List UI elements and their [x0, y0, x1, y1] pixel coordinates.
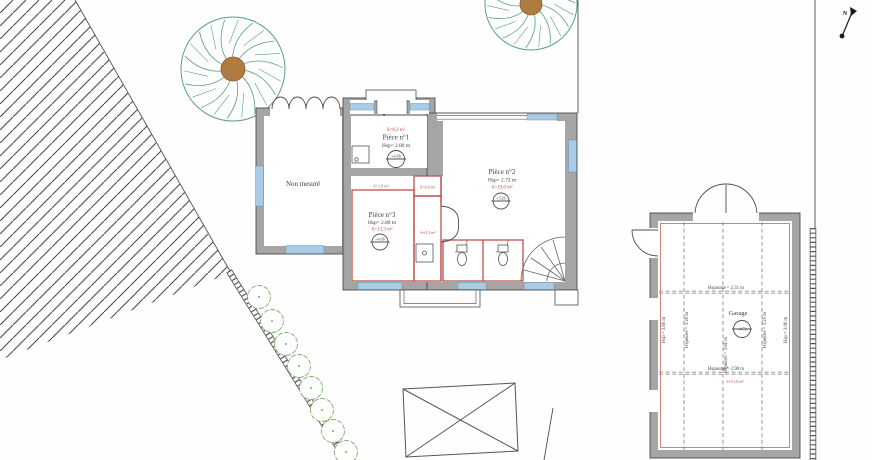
main-house: S=8,2 m² Pièce n°1 Hsp= 2.80 m +4.68 Piè… [343, 90, 577, 290]
window [410, 104, 429, 111]
corridor-interior [415, 176, 443, 282]
chimney-block [366, 90, 416, 101]
room2-height: Hsp= 2.72 m [488, 178, 517, 184]
room-non-mesure: Non mesuré [256, 97, 351, 254]
garage: Hspoutre = 2.31 m Hspoutre = 2.98 m S=51… [632, 184, 800, 458]
window [527, 114, 557, 120]
tree-icon [181, 17, 285, 121]
door-opening [377, 100, 407, 114]
room3-level: +4.68 [375, 237, 384, 242]
window [256, 166, 264, 206]
floor-plan-page: N Non mesuré [0, 0, 872, 460]
room1-name: Pièce n°1 [383, 134, 410, 142]
room3-height: Hsp= 2.80 m [368, 220, 397, 226]
garage-double-door-icon [695, 184, 757, 213]
room3-area: S=13,3 m² [372, 227, 393, 233]
garage-name: Garage [729, 310, 748, 317]
path-line [544, 408, 553, 460]
garage-beam-v2-label: Hspoutre = 3.81 m [724, 337, 729, 373]
exterior-step [555, 290, 578, 305]
room1-height: Hsp= 2.80 m [382, 143, 411, 149]
garage-door-opening [693, 212, 759, 222]
toilet-icon [498, 245, 508, 266]
toilet-icon [457, 245, 467, 266]
annex-label: Non mesuré [286, 180, 320, 188]
terrace-step [400, 290, 480, 307]
window [286, 246, 324, 254]
annex-door-opening [270, 107, 340, 117]
room2-name: Pièce n°2 [489, 168, 516, 176]
window [524, 283, 554, 290]
garage-window-gap [650, 298, 659, 320]
north-label: N [843, 11, 848, 17]
window [458, 283, 486, 290]
garage-side-door-opening [649, 228, 659, 258]
hatched-boundary-area [0, 0, 231, 360]
garage-beam-v3-label: Hspoutre = 3.25 m [763, 312, 768, 348]
room3-name: Pièce n°3 [369, 211, 396, 219]
garage-beam-top-label: Hspoutre = 2.31 m [708, 286, 744, 291]
garage-right-wall-height: Hsp = 3.96 m [784, 317, 789, 343]
garage-window-gap [650, 390, 659, 412]
room2-level: +5.26 [496, 196, 505, 201]
crossed-rectangle [403, 383, 518, 457]
fence-right [813, 0, 815, 460]
north-arrow-icon: N [840, 7, 857, 38]
garage-level: +4.72 [737, 327, 746, 332]
garage-left-wall-height: Hsp = 3.86 m [662, 317, 667, 343]
room1-level: +4.68 [391, 154, 400, 159]
room2-area: S=19,6 m² [492, 185, 513, 191]
window [358, 283, 402, 290]
tree-icon [485, 0, 577, 50]
floor-plan-canvas: N Non mesuré [0, 0, 872, 460]
garage-beam-v1-label: Hspoutre = 3.26 m [685, 312, 690, 348]
room1-area: S=8,2 m² [387, 127, 406, 133]
window [350, 104, 374, 111]
window [569, 140, 577, 172]
bush-row [248, 286, 358, 460]
